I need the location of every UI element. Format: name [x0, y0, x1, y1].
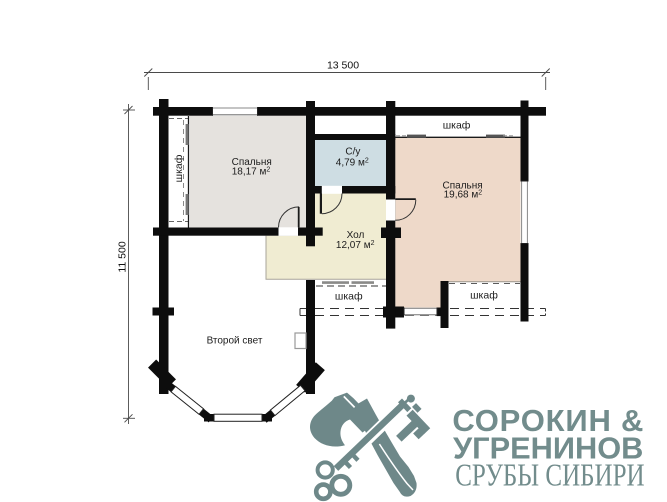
svg-text:Второй свет: Второй свет [207, 336, 263, 347]
svg-text:4,79 м2: 4,79 м2 [336, 157, 369, 168]
svg-text:12,07 м2: 12,07 м2 [336, 240, 375, 251]
svg-text:11 500: 11 500 [117, 241, 129, 272]
svg-text:19,68 м2: 19,68 м2 [444, 190, 483, 201]
svg-text:шкаф: шкаф [443, 119, 471, 131]
svg-text:СРУБЫ СИБИРИ: СРУБЫ СИБИРИ [455, 459, 644, 493]
svg-text:18,17 м2: 18,17 м2 [232, 166, 271, 177]
svg-text:13 500: 13 500 [327, 59, 359, 71]
svg-text:шкаф: шкаф [470, 289, 498, 301]
svg-text:шкаф: шкаф [335, 291, 363, 303]
svg-text:С/у: С/у [345, 146, 360, 157]
svg-text:шкаф: шкаф [173, 154, 185, 182]
